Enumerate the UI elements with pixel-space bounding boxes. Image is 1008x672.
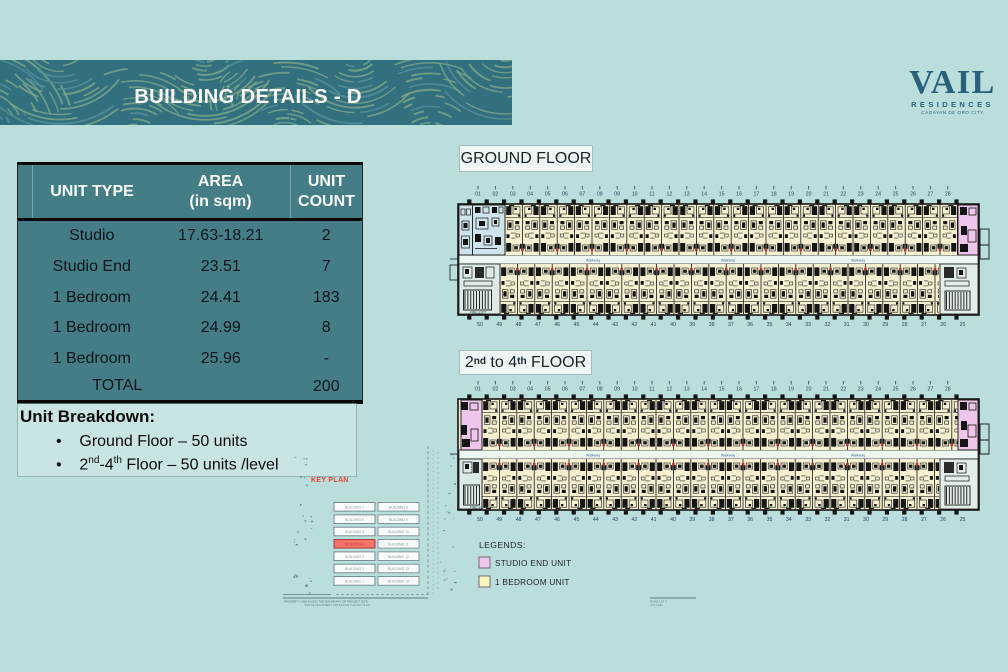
svg-text:BUILDING 9: BUILDING 9 — [389, 518, 408, 522]
svg-text:43: 43 — [612, 322, 618, 328]
svg-text:46: 46 — [554, 517, 560, 523]
svg-text:42: 42 — [632, 517, 638, 523]
svg-text:27: 27 — [921, 517, 927, 523]
svg-text:14: 14 — [701, 192, 707, 198]
svg-text:49: 49 — [496, 322, 502, 328]
svg-text:BUILDING 13: BUILDING 13 — [388, 567, 409, 571]
svg-text:08: 08 — [597, 387, 603, 393]
svg-text:31: 31 — [844, 517, 850, 523]
svg-text:06: 06 — [562, 192, 568, 198]
svg-text:BUILDING 7: BUILDING 7 — [345, 505, 364, 509]
svg-text:08: 08 — [597, 192, 603, 198]
svg-text:24: 24 — [875, 387, 881, 393]
svg-text:37: 37 — [728, 517, 734, 523]
svg-text:KEY PLAN: KEY PLAN — [311, 477, 349, 484]
svg-text:32: 32 — [825, 517, 831, 523]
svg-text:46: 46 — [554, 322, 560, 328]
svg-text:29: 29 — [882, 517, 888, 523]
svg-text:BUILDING 4: BUILDING 4 — [345, 542, 364, 546]
svg-text:35: 35 — [767, 322, 773, 328]
svg-text:40: 40 — [670, 517, 676, 523]
svg-text:LOT LINE: LOT LINE — [650, 603, 663, 607]
svg-text:Walkway: Walkway — [586, 453, 600, 457]
svg-text:10: 10 — [632, 192, 638, 198]
svg-text:19: 19 — [788, 192, 794, 198]
svg-text:13: 13 — [684, 192, 690, 198]
svg-text:26: 26 — [940, 517, 946, 523]
svg-text:11: 11 — [649, 192, 654, 198]
svg-text:BUILDING 6: BUILDING 6 — [345, 518, 364, 522]
svg-text:28: 28 — [902, 322, 908, 328]
svg-text:02: 02 — [493, 387, 499, 393]
svg-text:28: 28 — [945, 387, 951, 393]
svg-text:15: 15 — [719, 387, 725, 393]
svg-text:36: 36 — [747, 322, 753, 328]
svg-text:45: 45 — [574, 322, 580, 328]
svg-text:BUILDING 10: BUILDING 10 — [388, 530, 409, 534]
svg-text:18: 18 — [771, 192, 777, 198]
svg-text:21: 21 — [823, 387, 829, 393]
svg-text:41: 41 — [651, 517, 657, 523]
svg-text:23: 23 — [858, 387, 864, 393]
svg-text:30: 30 — [863, 322, 869, 328]
svg-text:STUDIO END UNIT: STUDIO END UNIT — [495, 559, 571, 568]
svg-text:BUILDING 5: BUILDING 5 — [345, 530, 364, 534]
svg-text:09: 09 — [614, 192, 620, 198]
svg-text:33: 33 — [805, 517, 811, 523]
svg-text:16: 16 — [736, 192, 742, 198]
svg-text:01: 01 — [475, 387, 481, 393]
svg-text:05: 05 — [545, 192, 551, 198]
svg-text:32: 32 — [825, 322, 831, 328]
svg-text:04: 04 — [527, 387, 533, 393]
svg-text:06: 06 — [562, 387, 568, 393]
svg-text:48: 48 — [516, 517, 522, 523]
svg-text:27: 27 — [928, 387, 934, 393]
svg-text:18: 18 — [771, 387, 777, 393]
svg-text:34: 34 — [786, 322, 792, 328]
svg-text:20: 20 — [806, 192, 812, 198]
svg-text:49: 49 — [496, 517, 502, 523]
svg-text:27: 27 — [928, 192, 934, 198]
svg-text:31: 31 — [844, 322, 850, 328]
svg-text:19: 19 — [788, 387, 794, 393]
svg-text:FIRE EXIT: FIRE EXIT — [470, 311, 486, 315]
svg-text:20: 20 — [806, 387, 812, 393]
svg-text:17: 17 — [754, 192, 760, 198]
svg-text:44: 44 — [593, 322, 599, 328]
svg-text:41: 41 — [651, 322, 657, 328]
svg-text:26: 26 — [940, 322, 946, 328]
svg-text:47: 47 — [535, 322, 541, 328]
svg-text:22: 22 — [841, 192, 847, 198]
svg-text:17: 17 — [754, 387, 760, 393]
svg-text:05: 05 — [545, 387, 551, 393]
svg-text:Walkway: Walkway — [851, 258, 865, 262]
svg-text:1 BEDROOM UNIT: 1 BEDROOM UNIT — [495, 578, 570, 587]
svg-text:BUILDING 3: BUILDING 3 — [345, 555, 364, 559]
svg-text:50: 50 — [477, 322, 483, 328]
svg-text:40: 40 — [670, 322, 676, 328]
svg-text:48: 48 — [516, 322, 522, 328]
svg-text:Walkway: Walkway — [721, 258, 735, 262]
svg-text:21: 21 — [823, 192, 829, 198]
svg-text:27: 27 — [921, 322, 927, 328]
svg-text:03: 03 — [510, 387, 516, 393]
svg-text:50: 50 — [477, 517, 483, 523]
svg-text:10: 10 — [632, 387, 638, 393]
svg-text:16: 16 — [736, 387, 742, 393]
svg-text:12: 12 — [667, 387, 673, 393]
svg-text:LEGENDS:: LEGENDS: — [479, 540, 526, 550]
svg-text:01: 01 — [475, 192, 481, 198]
svg-text:26: 26 — [910, 192, 916, 198]
svg-text:38: 38 — [709, 322, 715, 328]
svg-text:· :: · : — [421, 601, 424, 605]
svg-text:42: 42 — [632, 322, 638, 328]
svg-text:28: 28 — [902, 517, 908, 523]
svg-text:34: 34 — [786, 517, 792, 523]
svg-text:SITE DEVELOPMENT NOTES FOR THE: SITE DEVELOPMENT NOTES FOR THE KEY PLAN — [304, 603, 370, 607]
svg-text:25: 25 — [893, 387, 899, 393]
svg-text:13: 13 — [684, 387, 690, 393]
svg-text:03: 03 — [510, 192, 516, 198]
svg-text:BUILDING 1: BUILDING 1 — [345, 580, 364, 584]
svg-text:FIRE EXIT: FIRE EXIT — [470, 506, 486, 510]
svg-text:45: 45 — [574, 517, 580, 523]
svg-text:Walkway: Walkway — [586, 258, 600, 262]
svg-text:30: 30 — [863, 517, 869, 523]
svg-text:33: 33 — [805, 322, 811, 328]
svg-text:07: 07 — [580, 387, 586, 393]
svg-text:44: 44 — [593, 517, 599, 523]
svg-text:BUILDING 12: BUILDING 12 — [388, 555, 409, 559]
svg-text:25: 25 — [960, 322, 966, 328]
svg-text:14: 14 — [701, 387, 707, 393]
svg-text:22: 22 — [841, 387, 847, 393]
svg-text:25: 25 — [960, 517, 966, 523]
svg-text:43: 43 — [612, 517, 618, 523]
svg-text:25: 25 — [893, 192, 899, 198]
svg-text:04: 04 — [527, 192, 533, 198]
svg-text:29: 29 — [882, 322, 888, 328]
svg-text:36: 36 — [747, 517, 753, 523]
svg-text:37: 37 — [728, 322, 734, 328]
svg-text:39: 39 — [689, 322, 695, 328]
svg-text:BUILDING 11: BUILDING 11 — [388, 542, 409, 546]
svg-text:24: 24 — [875, 192, 881, 198]
svg-text:23: 23 — [858, 192, 864, 198]
svg-text:35: 35 — [767, 517, 773, 523]
svg-text:09: 09 — [614, 387, 620, 393]
svg-text:BUILDING 2: BUILDING 2 — [345, 567, 364, 571]
svg-text:39: 39 — [689, 517, 695, 523]
svg-text:38: 38 — [709, 517, 715, 523]
svg-text:BUILDING 14: BUILDING 14 — [388, 580, 409, 584]
svg-text:07: 07 — [580, 192, 586, 198]
svg-text:: ·: : · — [421, 588, 424, 592]
svg-text:12: 12 — [667, 192, 673, 198]
svg-text:26: 26 — [910, 387, 916, 393]
svg-text:47: 47 — [535, 517, 541, 523]
svg-text:Walkway: Walkway — [721, 453, 735, 457]
svg-text:15: 15 — [719, 192, 725, 198]
svg-text:28: 28 — [945, 192, 951, 198]
svg-text:11: 11 — [649, 387, 654, 393]
svg-text:BUILDING 8: BUILDING 8 — [389, 505, 408, 509]
svg-text:02: 02 — [493, 192, 499, 198]
svg-text:Walkway: Walkway — [851, 453, 865, 457]
